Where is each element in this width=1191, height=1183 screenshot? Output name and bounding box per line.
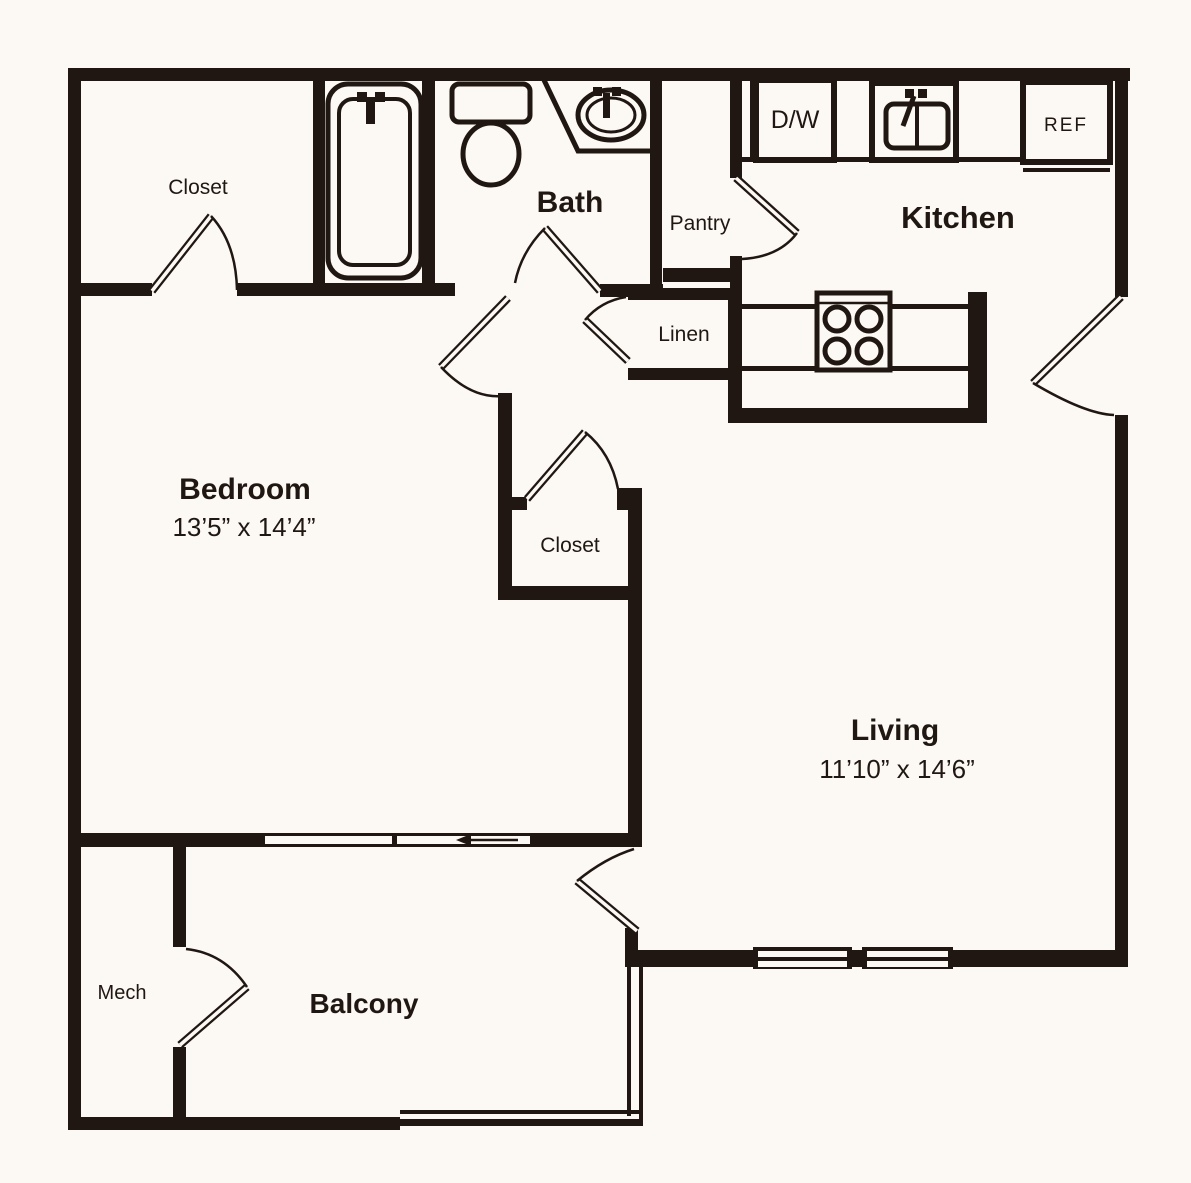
closet-top-label: Closet	[168, 176, 228, 199]
kitchen-sink	[872, 83, 956, 160]
wall-kitchen-bottom	[735, 408, 987, 423]
toilet	[452, 84, 530, 185]
living-dimensions: 11’10” x 14’6”	[819, 754, 975, 784]
bathtub-faucet-handle-right	[375, 92, 385, 102]
wall-bedroom-top-b	[237, 283, 455, 296]
wall-mech-right-bottom	[173, 1047, 186, 1117]
wall-living-bottom-a	[625, 950, 753, 967]
bedroom-door-arc	[441, 367, 503, 396]
pantry-door-arc	[742, 233, 797, 259]
entry-door	[1033, 297, 1121, 415]
wall-hallway	[498, 393, 512, 600]
closet-top-door-arc	[211, 216, 237, 290]
balcony-rail-right-inner	[627, 967, 631, 1116]
wall-tub-right	[422, 80, 435, 283]
toilet-tank	[452, 84, 530, 122]
wall-bottom-left	[68, 1117, 400, 1130]
dishwasher-label: D/W	[771, 106, 820, 134]
mech-door-arc	[186, 949, 247, 987]
balcony-door-arc	[577, 849, 634, 881]
bedroom-door	[441, 298, 508, 396]
balcony-rail-right-outer	[639, 967, 643, 1125]
balcony-rail-bottom-inner	[400, 1110, 643, 1114]
wall-mech-right-top	[173, 847, 186, 947]
wall-bath-right	[650, 80, 662, 284]
bath-sink-handle-right	[612, 87, 621, 96]
wall-bedroom-living-divider	[628, 510, 642, 847]
wall-right-lower	[1115, 415, 1128, 967]
ref-underline	[1023, 168, 1110, 172]
bedroom-dimensions: 13’5” x 14’4”	[172, 512, 315, 542]
wall-right-upper	[1115, 68, 1128, 297]
wall-linen-right	[728, 300, 742, 423]
closet-top-door	[152, 216, 237, 291]
living-window-1-pane-b	[758, 961, 847, 967]
wall-pantry-right-top	[730, 80, 742, 178]
kitchen-faucet-handle-right	[918, 89, 927, 98]
refrigerator-label: REF	[1044, 115, 1088, 136]
mech-door	[180, 949, 247, 1045]
floor-plan: D/W REF	[0, 0, 1191, 1183]
wall-linen-bottom	[628, 368, 728, 380]
bath-door-arc	[515, 228, 545, 283]
wall-closetmid-bottom	[498, 586, 642, 600]
bath-label: Bath	[537, 186, 604, 219]
wall-top	[68, 68, 1130, 81]
linen-label: Linen	[658, 323, 709, 346]
entry-door-arc	[1033, 383, 1114, 415]
closet-middle-label: Closet	[540, 534, 600, 557]
bath-sink	[544, 80, 652, 151]
stove	[817, 293, 890, 370]
wall-pantry-right-stub	[730, 256, 742, 288]
pantry-door	[736, 178, 797, 259]
bedroom-window	[265, 836, 392, 844]
balcony-label: Balcony	[310, 988, 419, 1019]
linen-door-arc	[585, 297, 626, 320]
linen-door	[585, 297, 628, 361]
wall-left	[68, 68, 81, 1130]
bathtub-faucet-spout	[366, 100, 375, 124]
balcony-rail-bottom-outer	[400, 1119, 643, 1126]
kitchen-faucet-lever	[903, 96, 914, 126]
balcony-door	[577, 849, 637, 931]
bath-door	[515, 228, 600, 291]
wall-closetmid-corner	[617, 488, 642, 510]
pantry-label: Pantry	[670, 212, 731, 235]
living-window-2-pane-b	[867, 961, 948, 967]
wall-island-right	[968, 292, 987, 408]
refrigerator: REF	[1023, 82, 1110, 162]
toilet-bowl	[463, 123, 519, 185]
bath-sink-handle-left	[593, 87, 602, 96]
wall-closet-right	[313, 80, 325, 296]
wall-living-window-mullion	[852, 950, 862, 967]
mech-label: Mech	[98, 982, 147, 1004]
wall-closetmid-stub	[498, 497, 527, 510]
closet-middle-door	[527, 432, 618, 499]
bedroom-label: Bedroom	[179, 473, 311, 506]
wall-linen-top	[628, 288, 742, 300]
wall-living-bottom-b	[953, 950, 1128, 967]
wall-bedroom-top-a	[68, 283, 152, 296]
living-window-2-pane-a	[867, 951, 948, 957]
closet-middle-door-arc	[585, 432, 618, 489]
dishwasher: D/W	[756, 80, 834, 160]
bath-sink-basin-inner	[587, 98, 635, 132]
living-label: Living	[851, 714, 939, 747]
bathtub-faucet-handle-left	[357, 92, 367, 102]
bathtub	[328, 84, 421, 278]
kitchen-label: Kitchen	[901, 200, 1015, 235]
living-window-1-pane-a	[758, 951, 847, 957]
bath-sink-spout	[603, 93, 610, 118]
wall-pantry-bottom	[663, 268, 730, 282]
